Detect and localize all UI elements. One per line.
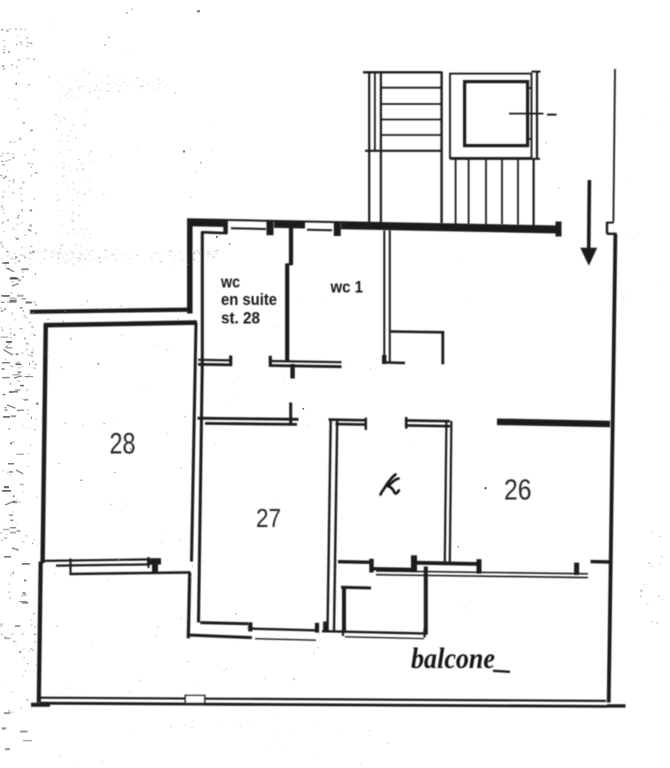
svg-text:balcone: balcone [411, 642, 495, 675]
svg-text:26: 26 [504, 475, 532, 507]
svg-text:wc 1: wc 1 [330, 279, 363, 297]
svg-text:wc: wc [220, 273, 240, 292]
svg-text:27: 27 [256, 503, 281, 533]
svg-text:en suite: en suite [221, 290, 277, 309]
svg-text:28: 28 [110, 428, 136, 461]
svg-text:st. 28: st. 28 [221, 309, 260, 328]
